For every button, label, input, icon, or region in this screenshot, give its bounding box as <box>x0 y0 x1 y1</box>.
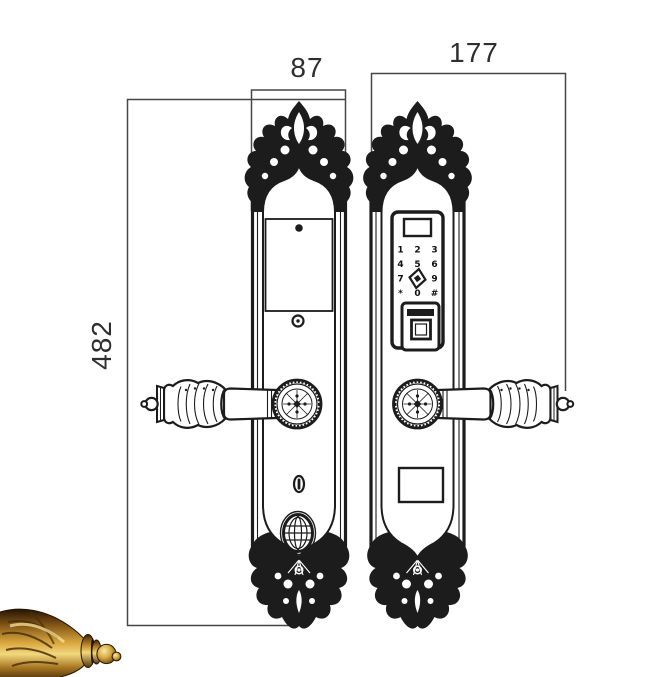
keypad-key: 6 <box>431 260 437 270</box>
emergency-keyhole <box>294 476 304 492</box>
lock-technical-drawing: 482 87 177 <box>0 0 659 677</box>
exterior-lever-handle <box>394 380 574 428</box>
fingerprint-scanner <box>402 303 439 350</box>
screw-dot <box>295 224 303 232</box>
dimension-label-overall-width: 177 <box>449 37 499 68</box>
keypad-key: 4 <box>397 260 403 270</box>
dimension-label-plate-width: 87 <box>290 52 323 83</box>
exterior-plate: 1 2 3 4 5 6 7 9 * 0 # <box>363 101 573 629</box>
keypad-key: # <box>431 289 439 299</box>
brass-handle-tip <box>112 652 121 661</box>
keypad-key: 1 <box>397 246 403 256</box>
interior-plate <box>141 101 353 629</box>
thumb-turn-knob <box>281 512 316 555</box>
dimension-label-height: 482 <box>86 320 117 370</box>
keypad-key: 7 <box>397 275 403 285</box>
brass-handle-photo <box>0 609 121 677</box>
keypad-key: 0 <box>414 289 420 299</box>
reset-hole <box>293 316 304 327</box>
display-window <box>404 219 431 236</box>
keypad-key: * <box>398 289 403 299</box>
lock-drawing-page: 482 87 177 <box>0 0 659 677</box>
key-cylinder-cover <box>399 468 443 502</box>
keypad-key: 9 <box>431 275 437 285</box>
keypad-key: 3 <box>431 246 437 256</box>
battery-cover-panel <box>266 219 333 311</box>
keypad-key: 2 <box>414 246 420 256</box>
interior-lever-handle <box>141 380 321 428</box>
